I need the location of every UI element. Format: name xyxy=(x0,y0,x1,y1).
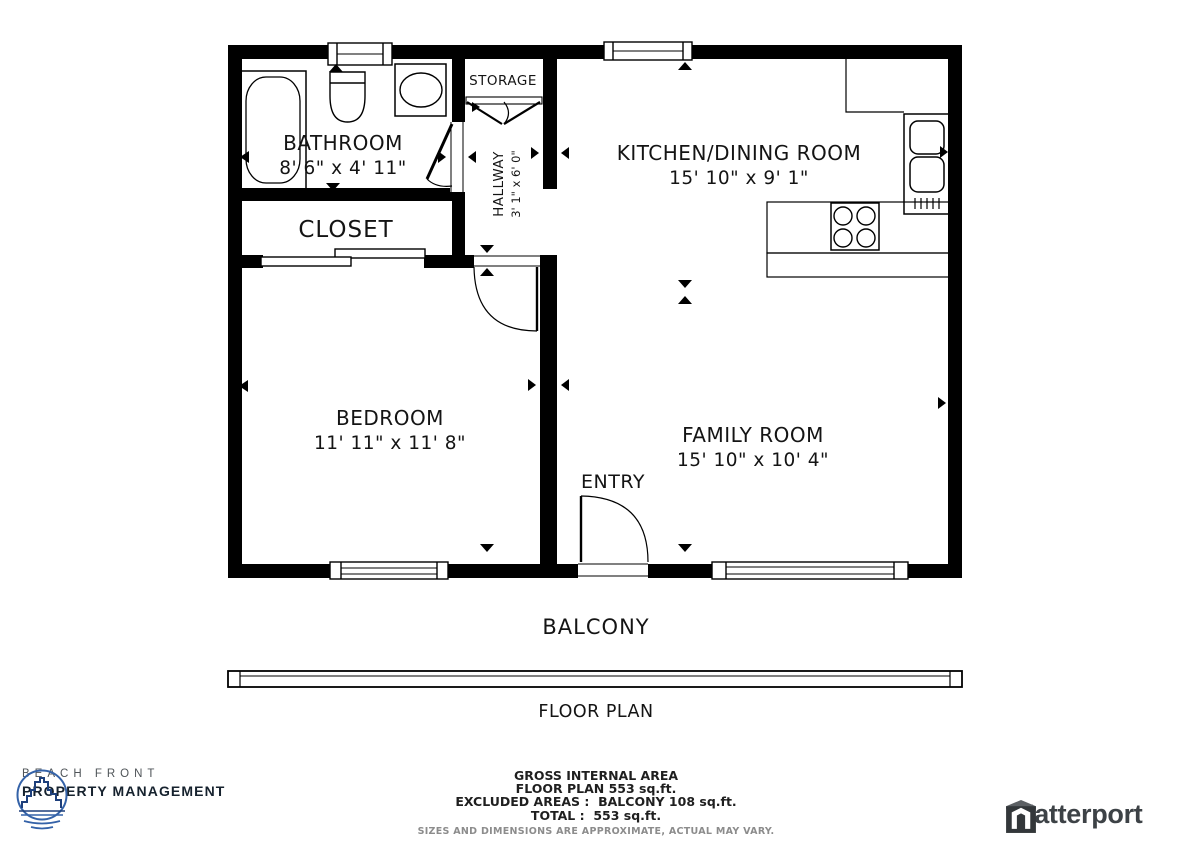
storage-bifold-doors xyxy=(467,102,540,124)
bedroom-name: BEDROOM xyxy=(314,406,466,430)
balcony-label: BALCONY xyxy=(542,615,649,639)
hallway-name: HALLWAY xyxy=(491,150,507,218)
bathroom-name: BATHROOM xyxy=(279,131,407,155)
family-room-dims: 15' 10" x 10' 4" xyxy=(677,450,829,471)
wall-hallway-left-bottom xyxy=(452,191,465,257)
kitchen-name: KITCHEN/DINING ROOM xyxy=(617,141,862,165)
windows xyxy=(328,42,908,579)
wave-line-2 xyxy=(31,827,53,829)
kitchen-window xyxy=(604,42,692,60)
family-room-label: FAMILY ROOM 15' 10" x 10' 4" xyxy=(677,423,829,471)
arrow-left-family-wall xyxy=(561,379,569,391)
arrow-right-bath-door xyxy=(438,151,446,163)
beachfront-logo-icon xyxy=(12,768,72,832)
kitchen-sink-icon xyxy=(904,114,950,214)
wall-bedroom-top-left-stub xyxy=(242,255,263,268)
entry-door xyxy=(581,496,648,562)
wall-hallway-right xyxy=(543,59,557,189)
closet-sliding-doors xyxy=(261,249,425,266)
bedroom-dims: 11' 11" x 11' 8" xyxy=(314,433,466,454)
bathroom-label: BATHROOM 8' 6" x 4' 11" xyxy=(279,131,407,179)
stove-icon xyxy=(831,203,879,250)
arrow-left-bath-door xyxy=(468,151,476,163)
hallway-dims: 3' 1" x 6' 0" xyxy=(509,150,523,218)
arrow-down-bedroom-window xyxy=(480,544,494,552)
bathroom-dims: 8' 6" x 4' 11" xyxy=(279,158,407,179)
bathroom-sink-icon xyxy=(395,64,446,116)
wall-hallway-left-top xyxy=(452,59,465,123)
closet-label: CLOSET xyxy=(298,217,393,243)
bedroom-door-opening xyxy=(474,255,540,268)
family-room-name: FAMILY ROOM xyxy=(677,423,829,447)
arrow-right-hallway-wall xyxy=(531,147,539,159)
entry-name: ENTRY xyxy=(581,471,645,493)
closet-name: CLOSET xyxy=(298,217,393,243)
area-summary: GROSS INTERNAL AREA FLOOR PLAN 553 sq.ft… xyxy=(418,769,775,837)
hallway-label: HALLWAY 3' 1" x 6' 0" xyxy=(491,150,523,218)
arrow-right-family xyxy=(938,397,946,409)
disclaimer-text: SIZES AND DIMENSIONS ARE APPROXIMATE, AC… xyxy=(418,826,775,837)
storage-label: STORAGE xyxy=(469,73,537,89)
plan-title: FLOOR PLAN xyxy=(538,702,653,722)
area-line-4: TOTAL : 553 sq.ft. xyxy=(418,809,775,822)
entry-opening xyxy=(578,563,648,578)
beachfront-brand: BEACH FRONT PROPERTY MANAGEMENT xyxy=(12,768,225,799)
arrow-left-kitchen-wall xyxy=(561,147,569,159)
balcony-railing xyxy=(228,671,962,687)
plan-title-text: FLOOR PLAN xyxy=(538,702,653,722)
counter-lower xyxy=(767,253,950,277)
drainer-lines xyxy=(915,198,939,209)
matterport-logo-icon xyxy=(1003,799,1039,835)
arrow-right-bedroom-wall xyxy=(528,379,536,391)
family-sliding-door xyxy=(712,562,908,579)
arrow-down-hallway xyxy=(480,245,494,253)
skyline-shape xyxy=(22,778,61,808)
bedroom-door xyxy=(474,267,537,331)
bathroom-door-opening xyxy=(450,122,465,192)
bedroom-window xyxy=(330,562,448,579)
wall-bathroom-bottom xyxy=(228,188,464,201)
entry-label: ENTRY xyxy=(581,471,645,493)
kitchen-dims: 15' 10" x 9' 1" xyxy=(617,168,862,189)
arrow-down-kitchen-open xyxy=(678,280,692,288)
kitchen-label: KITCHEN/DINING ROOM 15' 10" x 9' 1" xyxy=(617,141,862,189)
balcony-name: BALCONY xyxy=(542,615,649,639)
counter-corner-line xyxy=(846,59,904,112)
storage-name: STORAGE xyxy=(469,73,537,89)
bathroom-window xyxy=(328,43,392,65)
arrow-up-family-open xyxy=(678,296,692,304)
arrow-up-bedroom-door xyxy=(480,268,494,276)
arrow-up-kitchen-window xyxy=(678,62,692,70)
arrow-down-family-door xyxy=(678,544,692,552)
floor-plan-page: BATHROOM 8' 6" x 4' 11" CLOSET STORAGE H… xyxy=(0,0,1193,844)
bedroom-label: BEDROOM 11' 11" x 11' 8" xyxy=(314,406,466,454)
toilet-icon xyxy=(330,72,365,122)
wall-bedroom-family xyxy=(540,255,557,564)
wave-line-1 xyxy=(24,821,60,824)
area-line-3: EXCLUDED AREAS : BALCONY 108 sq.ft. xyxy=(418,795,775,808)
outer-walls xyxy=(228,45,962,578)
matterport-brand: Matterport xyxy=(1003,799,1143,830)
wall-bedroom-top-right-stub xyxy=(424,255,474,268)
